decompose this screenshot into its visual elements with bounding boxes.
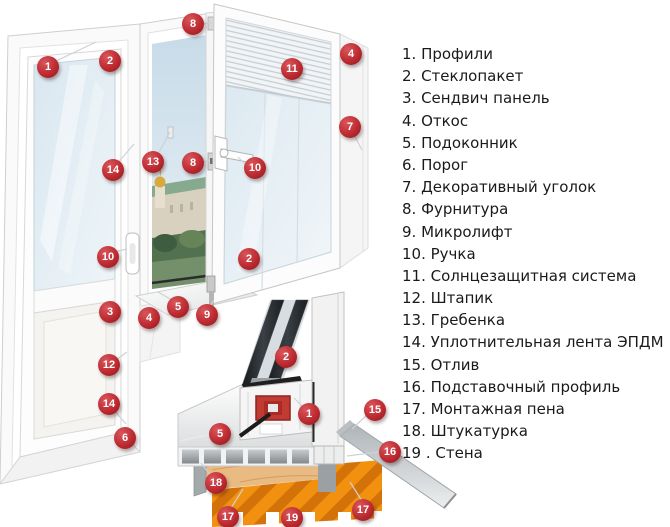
window-construction-diagram: 1284117138141010259341214215156161817191… [0, 0, 670, 527]
legend-item: 5. Подоконник [402, 132, 664, 154]
legend-item: 13. Гребенка [402, 309, 664, 331]
legend-list: 1. Профили2. Стеклопакет3. Сендвич панел… [402, 43, 664, 465]
legend-item: 17. Монтажная пена [402, 398, 664, 420]
legend-item: 4. Откос [402, 110, 664, 132]
legend-item: 2. Стеклопакет [402, 65, 664, 87]
legend-item: 15. Отлив [402, 354, 664, 376]
legend-item: 8. Фурнитура [402, 198, 664, 220]
golden-dome [155, 177, 166, 188]
legend-item: 7. Декоративный уголок [402, 176, 664, 198]
open-sash-drawing [207, 4, 368, 306]
legend-item: 3. Сендвич панель [402, 87, 664, 109]
cityscape-view [152, 35, 206, 289]
legend-item: 16. Подставочный профиль [402, 376, 664, 398]
slope-right-drawing [340, 34, 368, 268]
legend-item: 6. Порог [402, 154, 664, 176]
comb-restrictor [168, 127, 173, 138]
legend-item: 10. Ручка [402, 243, 664, 265]
legend-item: 11. Солнцезащитная система [402, 265, 664, 287]
subsill-profile-drawing [314, 446, 344, 464]
legend-item: 1. Профили [402, 43, 664, 65]
legend-item: 9. Микролифт [402, 221, 664, 243]
legend-item: 14. Уплотнительная лента ЭПДМ [402, 331, 664, 353]
legend-item: 19 . Стена [402, 442, 664, 464]
legend-item: 12. Штапик [402, 287, 664, 309]
legend-item: 18. Штукатурка [402, 420, 664, 442]
window-frame-drawing [140, 12, 218, 306]
glazing-section-drawing [240, 300, 310, 394]
